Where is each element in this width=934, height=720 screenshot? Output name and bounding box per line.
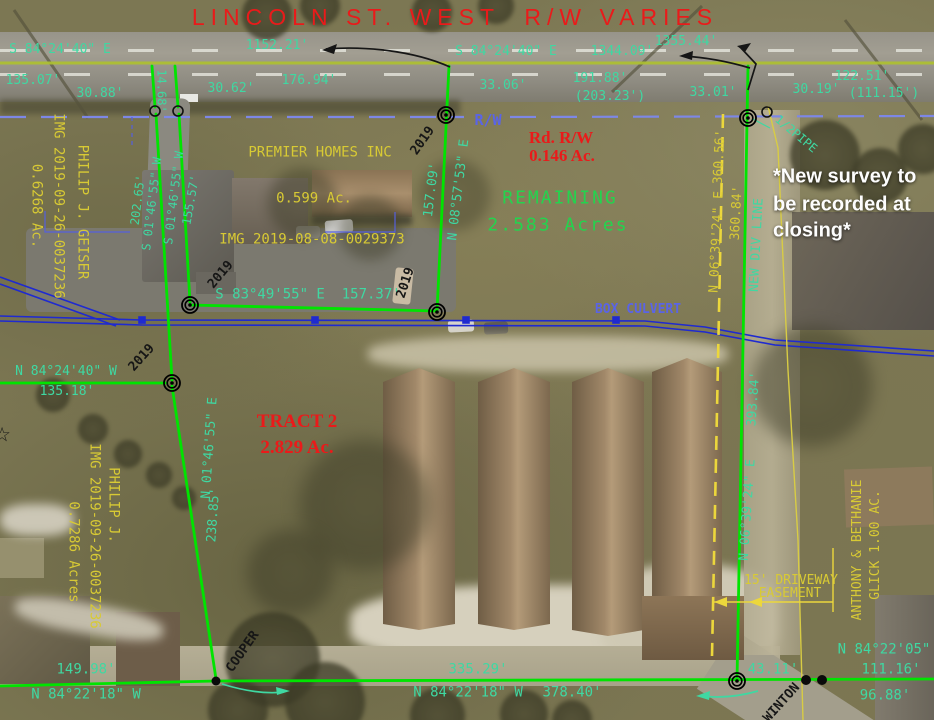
rw-label: R/W: [474, 113, 501, 129]
remaining-area: 2.583 Acres: [487, 217, 628, 236]
dist-111-16: 111.16': [861, 663, 920, 678]
bearing-top-left: S 84°24'40" E: [9, 43, 111, 57]
dist-135-18: 135.18': [40, 385, 95, 399]
bearing-n842205: N 84°22'05": [838, 643, 931, 658]
rd-rw-area: 0.146 Ac.: [529, 147, 595, 165]
dist-360-56: 360.56': [712, 129, 728, 184]
premier-img-ref: IMG 2019-08-08-0029373: [219, 233, 404, 248]
arrowhead: [276, 687, 290, 695]
geiser-name-north: PHILIP J. GEISER: [75, 145, 90, 280]
bearing-top-mid: S 84°24'40" E: [455, 45, 557, 59]
dist-96-88: 96.88': [860, 689, 911, 704]
easement-line-2: EASEMENT: [759, 587, 822, 601]
dist-335-29: 335.29': [448, 663, 507, 678]
tract2-area: 2.829 Ac.: [260, 438, 333, 458]
dist-203-23: (203.23'): [575, 90, 645, 104]
premier-homes-name: PREMIER HOMES INC: [248, 146, 391, 161]
dist-30-88: 30.88': [77, 87, 124, 101]
dist-1355-44: 1355.44': [655, 35, 718, 49]
premier-area: 0.599 Ac.: [276, 192, 352, 207]
geiser-img-south: IMG 2019-09-26-0037236: [87, 443, 102, 628]
dist-191-88: 191.88': [573, 72, 628, 86]
star-symbol: ☆: [0, 417, 10, 446]
dist-135-07: 135.07': [6, 74, 61, 88]
dist-360-84: 360.84': [729, 185, 745, 240]
survey-map: LINCOLN ST. WEST R/W VARIESS 84°24'40" E…: [0, 0, 934, 720]
arrowhead: [737, 43, 751, 52]
note-line-1: *New survey to: [773, 167, 916, 188]
dist-111-15: (111.15'): [849, 87, 919, 101]
rd-rw-label: Rd. R/W: [529, 129, 593, 147]
dist-43-11: 43.11': [748, 663, 799, 678]
open-circles: [150, 106, 772, 117]
line-s834955e: S 83°49'55" E 157.37': [215, 288, 400, 303]
dist-378-40: 378.40': [542, 686, 601, 701]
dist-1152-21: 1152.21': [246, 39, 309, 53]
rw-dashed-line: [0, 116, 934, 117]
parcel-blue-lines: [45, 117, 395, 232]
glick-area: GLICK 1.00 AC.: [869, 490, 883, 600]
tract2-label: TRACT 2: [257, 412, 337, 432]
bearing-n842218w-mid: N 84°22'18" W: [413, 686, 523, 701]
geiser-area-south: 0.7286 Acres: [66, 501, 81, 602]
geiser-img-north: IMG 2019-09-26-0037236: [51, 113, 66, 298]
box-culvert-line: [0, 277, 934, 356]
geiser-name-south: PHILIP J.: [106, 467, 121, 543]
note-line-2: be recorded at: [773, 195, 911, 216]
dist-30-62: 30.62': [208, 82, 255, 96]
box-culvert-label: BOX CULVERT: [595, 303, 681, 317]
bearing-n842440w: N 84°24'40" W: [15, 365, 117, 379]
arrowhead: [322, 44, 337, 54]
dist-30-19: 30.19': [793, 83, 840, 97]
dist-149-98: 149.98': [56, 663, 115, 678]
remaining-label: REMAINING: [502, 190, 618, 209]
dist-1344-09: 1344.09': [591, 45, 654, 59]
dist-14-68: 14.68': [155, 69, 168, 112]
arrowhead: [679, 51, 693, 60]
street-title: LINCOLN ST. WEST R/W VARIES: [192, 5, 718, 29]
bearing-n842218w-left: N 84°22'18" W: [31, 688, 141, 703]
note-line-3: closing*: [773, 221, 851, 242]
arrowhead: [696, 691, 710, 700]
dist-33-01: 33.01': [690, 86, 737, 100]
dist-122-51: 122.51': [835, 70, 890, 84]
geiser-area-north: 0.6268 Ac.: [29, 164, 44, 248]
glick-name: ANTHONY & BETHANIE: [851, 480, 865, 621]
dist-176-94: 176.94': [282, 74, 337, 88]
dist-33-06: 33.06': [480, 79, 527, 93]
